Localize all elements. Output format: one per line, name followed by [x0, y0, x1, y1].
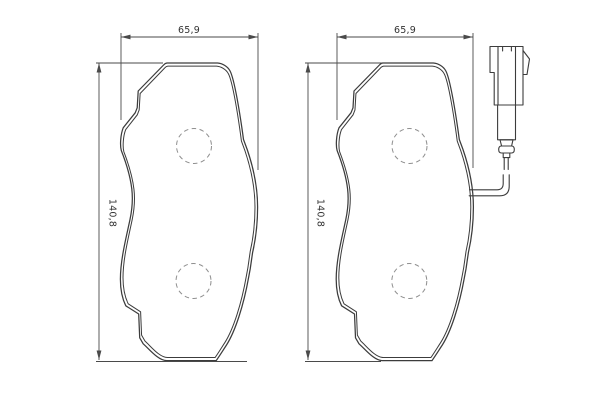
right-pad-height-label: 140,8 [315, 199, 326, 227]
right-pad-width-label: 65,9 [394, 25, 416, 36]
canvas-background [0, 0, 600, 400]
left-pad-height-label: 140,8 [107, 199, 118, 227]
brake-pad-technical-drawing: 65,9 140,8 65,9 140,8 [0, 0, 600, 400]
left-pad-width-label: 65,9 [178, 25, 200, 36]
drawing-stage: 65,9 140,8 65,9 140,8 [0, 0, 600, 400]
